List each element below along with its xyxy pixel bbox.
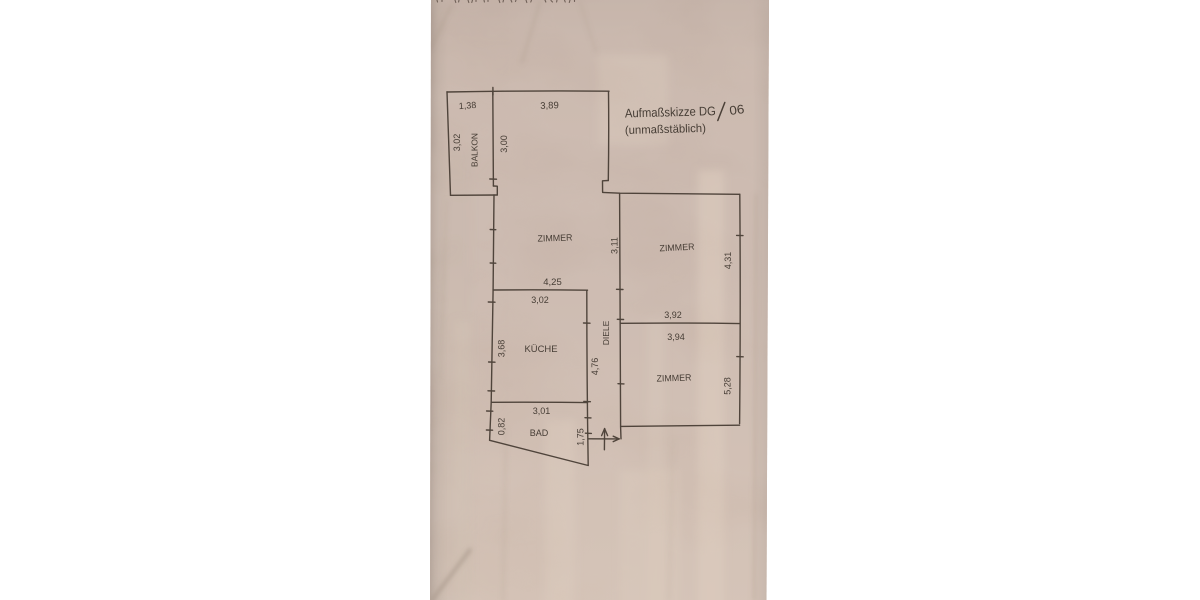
svg-text:4,25: 4,25 (543, 277, 562, 288)
svg-text:3,89: 3,89 (540, 100, 559, 112)
svg-text:1,38: 1,38 (458, 100, 476, 111)
svg-text:1,75: 1,75 (575, 428, 585, 446)
svg-text:0,82: 0,82 (496, 418, 506, 436)
svg-text:BAD: BAD (530, 428, 549, 438)
svg-text:3,68: 3,68 (496, 340, 506, 358)
svg-text:3,01: 3,01 (533, 406, 551, 416)
svg-text:KÜCHE: KÜCHE (525, 344, 558, 354)
svg-text:3,11: 3,11 (609, 237, 619, 254)
svg-text:DIELE: DIELE (601, 320, 611, 345)
svg-text:4,31: 4,31 (723, 252, 733, 270)
svg-text:4,76: 4,76 (590, 358, 600, 376)
svg-text:3,02: 3,02 (452, 134, 462, 152)
svg-text:3,02: 3,02 (531, 295, 549, 305)
svg-text:BALKON: BALKON (470, 133, 480, 167)
svg-text:ZIMMER: ZIMMER (659, 242, 695, 254)
svg-text:(unmaßstäblich): (unmaßstäblich) (625, 123, 706, 137)
svg-text:ZIMMER: ZIMMER (537, 232, 573, 243)
svg-text:3,94: 3,94 (667, 332, 685, 342)
svg-text:ZIMMER: ZIMMER (656, 372, 692, 383)
svg-text:Aufmaßskizze DG: Aufmaßskizze DG (625, 104, 716, 120)
svg-text:3,92: 3,92 (664, 310, 682, 320)
svg-text:06: 06 (728, 102, 745, 118)
svg-text:5,28: 5,28 (723, 377, 733, 395)
svg-text:3,00: 3,00 (499, 135, 509, 153)
